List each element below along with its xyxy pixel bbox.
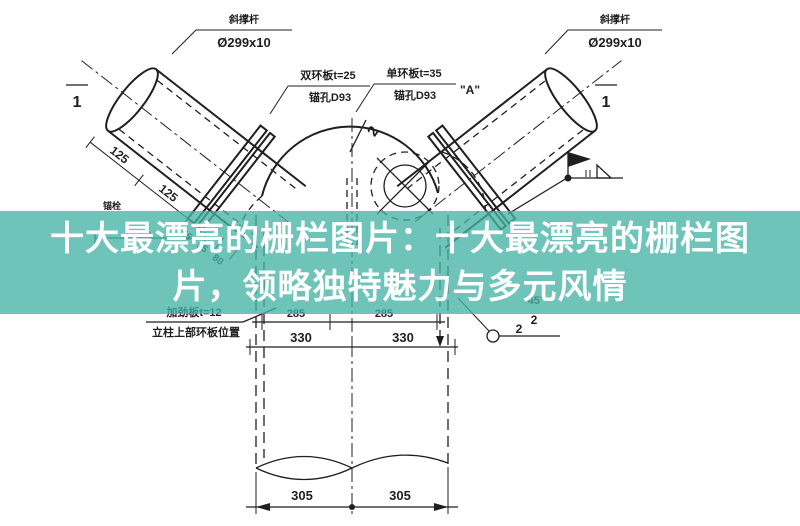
detail-a-mark: "A"	[460, 83, 480, 97]
ring-label-right: 单环板t=35 锚孔D93 "A"	[356, 66, 480, 112]
field-weld-flag	[508, 152, 623, 214]
section-mark-left-number: 1	[73, 94, 82, 111]
slope-mark: 2	[364, 123, 383, 140]
ring-label-left-line1: 双环板t=25	[300, 68, 355, 82]
weld-number-1: 2	[516, 322, 523, 336]
ring-label-right-line2: 锚孔D93	[394, 88, 436, 102]
weld-number-2: 2	[531, 313, 538, 327]
dim-305-a: 305	[291, 488, 313, 503]
section-mark-right: 1	[595, 85, 617, 111]
dim-row-330: 330 330	[246, 330, 458, 355]
ring-label-left: 双环板t=25 锚孔D93	[270, 68, 370, 114]
dim-330-a: 330	[290, 330, 312, 345]
ring-label-left-line2: 锚孔D93	[309, 90, 351, 104]
banner-title-line1: 十大最漂亮的栅栏图片：十大最漂亮的栅栏图	[50, 215, 750, 263]
section-mark-right-number: 1	[602, 94, 611, 111]
ring-label-right-line1: 单环板t=35	[386, 66, 441, 80]
hero-image: 125 125 55 95 80 斜撑杆 Ø299x10 斜撑杆 Ø299x10…	[0, 0, 800, 526]
callout-right-spec: Ø299x10	[588, 35, 642, 50]
banner-title-line2: 片，领略独特魅力与多元风情	[173, 263, 628, 311]
section-mark-left: 1	[66, 85, 88, 111]
callout-left: 斜撑杆 Ø299x10	[172, 13, 292, 54]
callout-right-title: 斜撑杆	[599, 13, 630, 26]
dim-330-b: 330	[392, 330, 414, 345]
callout-left-title: 斜撑杆	[228, 13, 259, 26]
small-anchor-label: 锚栓	[103, 200, 121, 211]
dim-305-b: 305	[389, 488, 411, 503]
title-banner: 十大最漂亮的栅栏图片：十大最漂亮的栅栏图 片，领略独特魅力与多元风情	[0, 211, 800, 314]
callout-left-spec: Ø299x10	[217, 35, 271, 50]
callout-right: 斜撑杆 Ø299x10	[545, 13, 662, 54]
plate-label-line2: 立柱上部环板位置	[152, 325, 240, 339]
